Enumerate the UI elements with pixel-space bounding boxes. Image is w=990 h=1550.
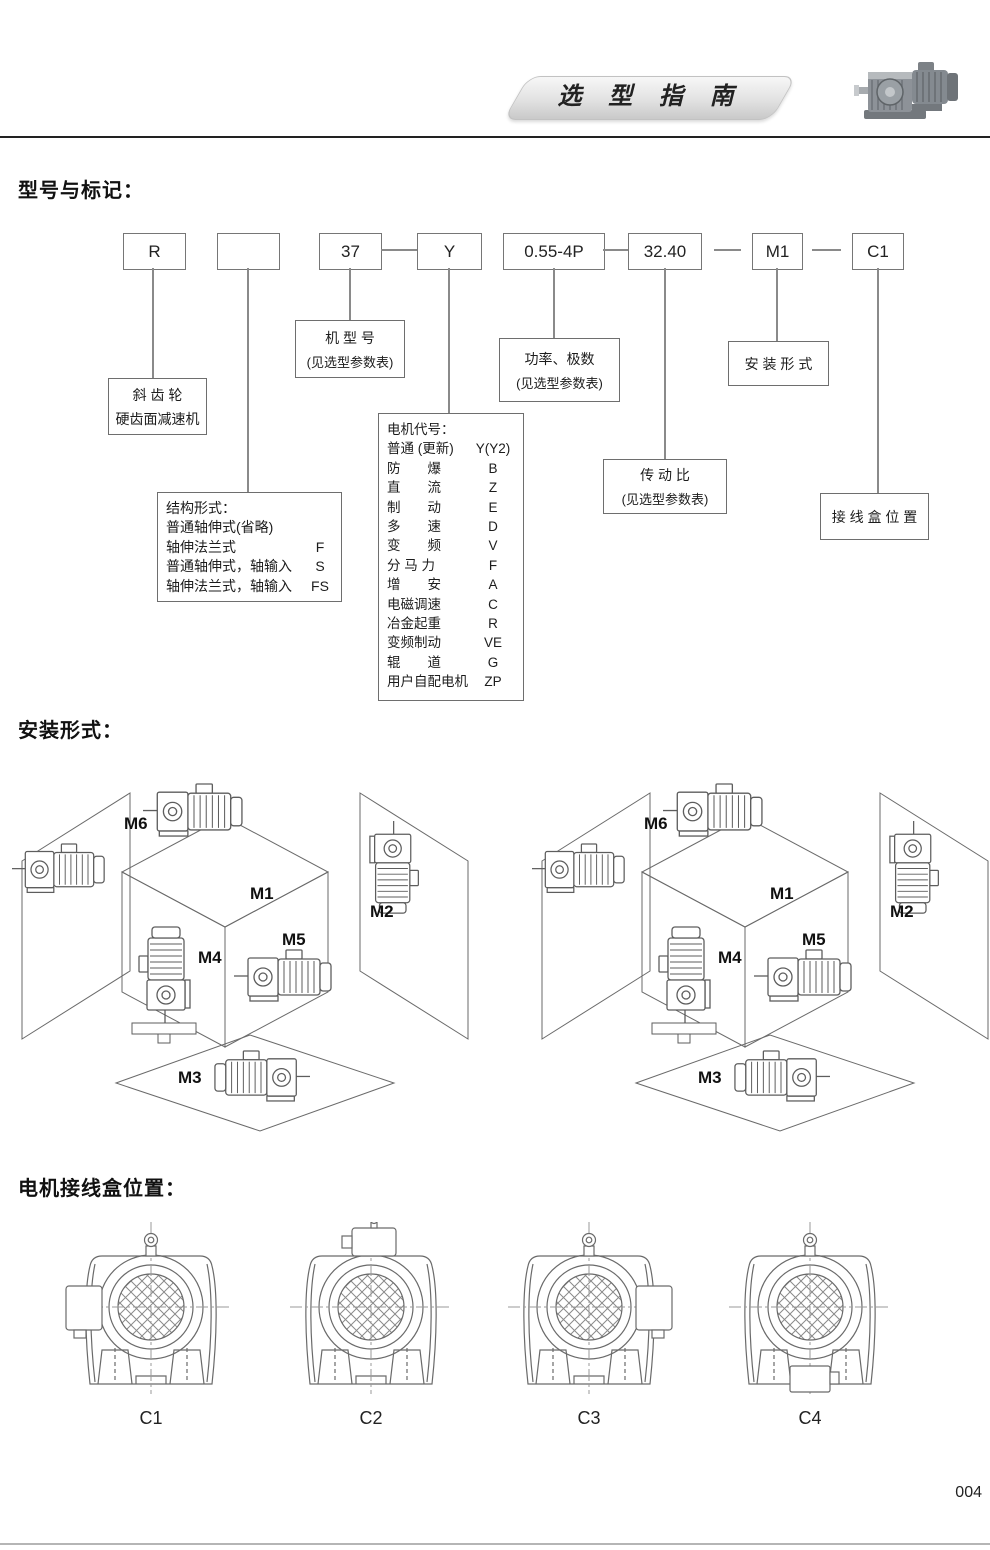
motor-code-row: 辊 道G: [387, 653, 515, 672]
leader-line: [247, 268, 249, 492]
motor-code-label: 制 动: [387, 498, 441, 517]
motor-code-label: 电磁调速: [387, 595, 441, 614]
callout-text: 硬齿面减速机: [109, 409, 206, 429]
mounting-label-m1: M1: [250, 884, 274, 903]
mounting-label-m6: M6: [644, 814, 668, 833]
motor-code-row: 用户自配电机ZP: [387, 672, 515, 691]
structure-row: 轴伸法兰式F: [166, 538, 333, 557]
code-box-power: 0.55-4P: [503, 233, 605, 270]
junction-label-c1: C1: [121, 1408, 181, 1429]
connector-line: [714, 249, 741, 251]
mounting-label-m5: M5: [802, 930, 826, 949]
motor-code-row: 变频制动VE: [387, 633, 515, 652]
motor-code-value: VE: [471, 633, 515, 652]
callout-power: 功率、极数 (见选型参数表): [499, 338, 620, 402]
motor-code-row: 普通 (更新)Y(Y2): [387, 439, 515, 458]
leader-line: [776, 268, 778, 341]
leader-line: [877, 268, 879, 493]
motor-code-label: 多 速: [387, 517, 441, 536]
structure-row: 普通轴伸式(省略): [166, 518, 333, 537]
leader-line: [664, 268, 666, 459]
callout-structure: 结构形式： 普通轴伸式(省略) 轴伸法兰式F 普通轴伸式，轴输入S 轴伸法兰式，…: [157, 492, 342, 602]
callout-ratio: 传 动 比 (见选型参数表): [603, 459, 727, 514]
section-title-model: 型号与标记：: [18, 174, 144, 203]
callout-text: 传 动 比: [604, 465, 726, 485]
junction-label-c3: C3: [559, 1408, 619, 1429]
motor-code-value: V: [471, 536, 515, 555]
motor-code-title: 电机代号：: [387, 420, 515, 439]
connector-line: [381, 249, 417, 251]
motor-code-value: C: [471, 595, 515, 614]
callout-text: (见选型参数表): [296, 352, 404, 371]
page-title: 选 型 指 南: [518, 77, 784, 117]
mounting-label-m3: M3: [178, 1068, 202, 1087]
callout-text: 接 线 盒 位 置: [821, 507, 928, 527]
leader-line: [448, 268, 450, 413]
callout-text: 斜 齿 轮: [109, 385, 206, 405]
mounting-label-m5: M5: [282, 930, 306, 949]
structure-label: 普通轴伸式(省略): [166, 518, 273, 537]
motor-code-value: R: [471, 614, 515, 633]
callout-model-no: 机 型 号 (见选型参数表): [295, 320, 405, 378]
callout-text: (见选型参数表): [500, 373, 619, 392]
motor-code-row: 增 安A: [387, 575, 515, 594]
leader-line: [553, 268, 555, 338]
motor-code-label: 分 马 力: [387, 556, 435, 575]
motor-code-value: Y(Y2): [471, 439, 515, 458]
motor-code-row: 防 爆B: [387, 459, 515, 478]
motor-code-value: B: [471, 459, 515, 478]
mounting-label-m2: M2: [370, 902, 394, 921]
motor-code-label: 普通 (更新): [387, 439, 454, 458]
mounting-diagram-left: M1 M2 M3 M4 M5 M6: [10, 765, 480, 1165]
structure-label: 轴伸法兰式，轴输入: [166, 577, 292, 596]
connector-line: [603, 249, 628, 251]
code-box-size: 37: [319, 233, 382, 270]
motor-code-row: 电磁调速C: [387, 595, 515, 614]
structure-label: 普通轴伸式，轴输入: [166, 557, 292, 576]
mounting-label-m3: M3: [698, 1068, 722, 1087]
mounting-label-m6: M6: [124, 814, 148, 833]
junction-position-drawings: [0, 1222, 990, 1422]
callout-text: (见选型参数表): [604, 489, 726, 508]
motor-code-row: 直 流Z: [387, 478, 515, 497]
code-box-series: R: [123, 233, 186, 270]
callout-text: 安 装 形 式: [729, 354, 828, 374]
structure-row: 轴伸法兰式，轴输入FS: [166, 577, 333, 596]
motor-view-c1: [66, 1222, 232, 1394]
structure-label: 轴伸法兰式: [166, 538, 236, 557]
catalog-page: 选 型 指 南 型号与标记： R 37 Y 0.55-4P 32.40 M1 C…: [0, 0, 990, 1550]
callout-reducer: 斜 齿 轮 硬齿面减速机: [108, 378, 207, 435]
motor-code-row: 制 动E: [387, 498, 515, 517]
motor-code-label: 用户自配电机: [387, 672, 468, 691]
code-box-motor: Y: [417, 233, 482, 270]
mounting-label-m1: M1: [770, 884, 794, 903]
mounting-label-m4: M4: [718, 948, 742, 967]
structure-value: S: [307, 557, 333, 576]
motor-code-value: D: [471, 517, 515, 536]
code-box-ratio: 32.40: [628, 233, 702, 270]
gear-motor-photo: [854, 58, 962, 124]
motor-code-row: 多 速D: [387, 517, 515, 536]
leader-line: [152, 268, 154, 378]
code-box-mounting: M1: [752, 233, 803, 270]
mounting-label-m2: M2: [890, 902, 914, 921]
structure-value: FS: [307, 577, 333, 596]
callout-text: 机 型 号: [296, 328, 404, 348]
motor-code-value: ZP: [471, 672, 515, 691]
page-number: 004: [955, 1484, 982, 1502]
junction-label-c4: C4: [780, 1408, 840, 1429]
connector-line: [812, 249, 841, 251]
motor-code-label: 增 安: [387, 575, 441, 594]
motor-code-value: Z: [471, 478, 515, 497]
motor-code-row: 分 马 力F: [387, 556, 515, 575]
motor-code-label: 冶金起重: [387, 614, 441, 633]
mounting-diagram-right: M1 M2 M3 M4 M5 M6: [530, 765, 990, 1165]
motor-code-row: 变 频V: [387, 536, 515, 555]
callout-text: 功率、极数: [500, 349, 619, 369]
motor-code-label: 防 爆: [387, 459, 441, 478]
motor-view-c2: [290, 1222, 452, 1394]
mounting-label-m4: M4: [198, 948, 222, 967]
motor-code-label: 变 频: [387, 536, 441, 555]
footer-divider: [0, 1543, 990, 1545]
code-box-structure: [217, 233, 280, 270]
motor-code-row: 冶金起重R: [387, 614, 515, 633]
motor-code-label: 变频制动: [387, 633, 441, 652]
structure-value: F: [307, 538, 333, 557]
motor-view-c4: [729, 1222, 891, 1394]
callout-mounting: 安 装 形 式: [728, 341, 829, 386]
motor-code-value: E: [471, 498, 515, 517]
motor-code-value: F: [471, 556, 515, 575]
motor-code-value: A: [471, 575, 515, 594]
motor-view-c3: [508, 1222, 672, 1394]
structure-title: 结构形式：: [166, 499, 333, 518]
junction-label-c2: C2: [341, 1408, 401, 1429]
motor-code-value: G: [471, 653, 515, 672]
callout-junction: 接 线 盒 位 置: [820, 493, 929, 540]
section-title-mounting: 安装形式：: [18, 714, 123, 743]
section-banner: 选 型 指 南: [503, 76, 796, 120]
header-divider: [0, 136, 990, 138]
callout-motor-code: 电机代号： 普通 (更新)Y(Y2) 防 爆B 直 流Z 制 动E 多 速D 变…: [378, 413, 524, 701]
code-box-junction: C1: [852, 233, 904, 270]
motor-code-label: 直 流: [387, 478, 441, 497]
structure-row: 普通轴伸式，轴输入S: [166, 557, 333, 576]
motor-code-label: 辊 道: [387, 653, 441, 672]
section-title-junction: 电机接线盒位置：: [18, 1172, 186, 1201]
leader-line: [349, 268, 351, 320]
